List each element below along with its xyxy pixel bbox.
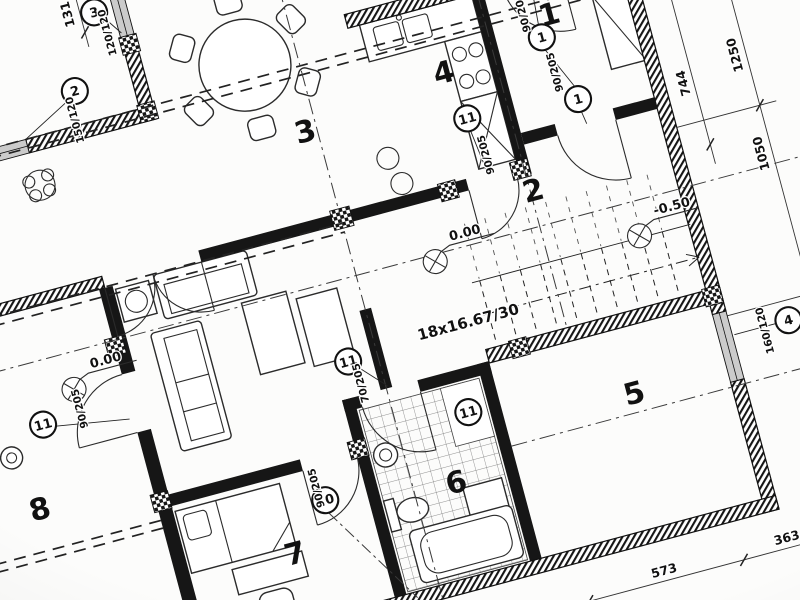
blueprint-scan: 3 2 1 1 4 10 11 11 11 11 1 2 3 xyxy=(0,0,800,600)
floor-plan-drawing: 3 2 1 1 4 10 11 11 11 11 1 2 3 xyxy=(0,0,800,600)
